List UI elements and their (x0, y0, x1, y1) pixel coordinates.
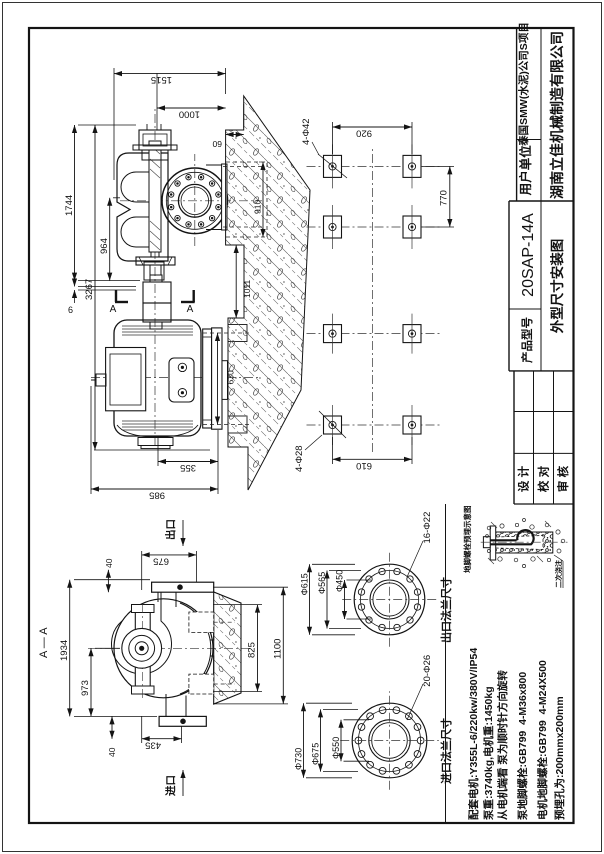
svg-text:630: 630 (226, 370, 236, 384)
svg-text:预埋孔为:200mmx200mm: 预埋孔为:200mmx200mm (553, 696, 566, 820)
svg-text:从电机端看 泵为顺时针方向旋转: 从电机端看 泵为顺时针方向旋转 (496, 670, 509, 820)
svg-text:Φ675: Φ675 (311, 743, 321, 765)
svg-text:A: A (187, 304, 194, 315)
svg-text:675: 675 (153, 556, 169, 567)
svg-text:355: 355 (180, 462, 196, 473)
svg-text:A — A: A — A (38, 627, 50, 658)
svg-text:1011: 1011 (242, 279, 252, 298)
svg-text:出口: 出口 (164, 519, 177, 540)
svg-text:地脚螺栓预埋示意图: 地脚螺栓预埋示意图 (462, 505, 472, 573)
svg-text:4-Φ28: 4-Φ28 (294, 445, 305, 472)
svg-text:配套电机:Y355L-6/220kw/380V/IP54: 配套电机:Y355L-6/220kw/380V/IP54 (467, 648, 480, 820)
svg-text:产品型号: 产品型号 (520, 317, 534, 363)
svg-text:20SAP-14A: 20SAP-14A (520, 213, 537, 297)
svg-text:电机地脚螺栓:GB799 4-M24X500: 电机地脚螺栓:GB799 4-M24X500 (536, 660, 549, 820)
svg-text:1100: 1100 (273, 639, 284, 659)
svg-text:1744: 1744 (64, 195, 75, 216)
svg-text:610: 610 (356, 460, 372, 471)
svg-text:审 核: 审 核 (556, 465, 570, 492)
svg-text:泵地脚螺栓:GB799 4-M36x800: 泵地脚螺栓:GB799 4-M36x800 (516, 672, 529, 820)
svg-text:校 对: 校 对 (537, 465, 551, 492)
svg-text:16-Φ22: 16-Φ22 (422, 512, 433, 544)
svg-text:985: 985 (149, 490, 165, 501)
svg-text:Φ450: Φ450 (335, 570, 345, 592)
svg-text:825: 825 (247, 642, 258, 658)
svg-text:用户单位: 用户单位 (518, 145, 533, 197)
svg-text:A: A (110, 304, 117, 315)
svg-text:1515: 1515 (151, 74, 172, 85)
svg-text:外型尺寸安装图: 外型尺寸安装图 (549, 239, 565, 334)
svg-text:40: 40 (107, 747, 117, 757)
svg-text:设 计: 设 计 (517, 465, 531, 492)
svg-text:Φ550: Φ550 (331, 737, 341, 759)
svg-text:进口法兰尺寸: 进口法兰尺寸 (439, 718, 453, 784)
svg-text:进口: 进口 (164, 775, 177, 796)
svg-text:20-Φ26: 20-Φ26 (422, 655, 433, 687)
svg-text:出口法兰尺寸: 出口法兰尺寸 (439, 577, 453, 643)
svg-text:Φ565: Φ565 (317, 572, 327, 594)
svg-text:1000: 1000 (179, 109, 200, 120)
svg-text:Φ730: Φ730 (294, 748, 304, 770)
svg-text:973: 973 (80, 680, 91, 696)
svg-text:435: 435 (145, 740, 161, 751)
svg-text:湖南立佳机械制造有限公司: 湖南立佳机械制造有限公司 (549, 31, 565, 199)
svg-text:泰国SMW(水泥)公司S项目: 泰国SMW(水泥)公司S项目 (517, 22, 530, 147)
svg-text:920: 920 (356, 128, 372, 139)
svg-text:910: 910 (253, 200, 263, 214)
svg-text:Φ615: Φ615 (300, 573, 310, 595)
svg-text:4-Φ42: 4-Φ42 (301, 118, 312, 145)
svg-text:770: 770 (439, 190, 450, 206)
svg-text:6: 6 (68, 305, 73, 315)
svg-text:1934: 1934 (59, 640, 70, 661)
svg-text:964: 964 (99, 238, 110, 254)
svg-text:二次浇注: 二次浇注 (554, 560, 563, 588)
svg-text:60: 60 (212, 139, 222, 149)
svg-text:泵重:3740kg,电机重:1450kg: 泵重:3740kg,电机重:1450kg (482, 686, 495, 820)
svg-text:3267: 3267 (84, 279, 95, 300)
svg-text:40: 40 (104, 558, 114, 568)
